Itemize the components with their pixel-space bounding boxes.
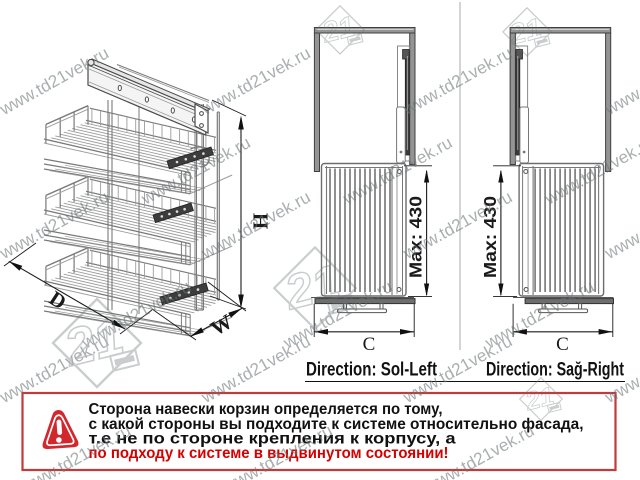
- svg-text:www.td21vek.ru: www.td21vek.ru: [197, 187, 314, 264]
- svg-text:www.td21vek.ru: www.td21vek.ru: [600, 187, 640, 264]
- svg-text:Direction: Sol-Left: Direction: Sol-Left: [306, 359, 438, 380]
- svg-text:www.td21vek.ru: www.td21vek.ru: [197, 43, 314, 120]
- svg-text:Direction: Sağ-Right: Direction: Sağ-Right: [486, 359, 624, 380]
- svg-text:C: C: [556, 334, 569, 355]
- svg-text:www.td21vek.ru: www.td21vek.ru: [399, 43, 516, 120]
- svg-text:C: C: [363, 334, 376, 355]
- svg-text:21: 21: [318, 11, 357, 50]
